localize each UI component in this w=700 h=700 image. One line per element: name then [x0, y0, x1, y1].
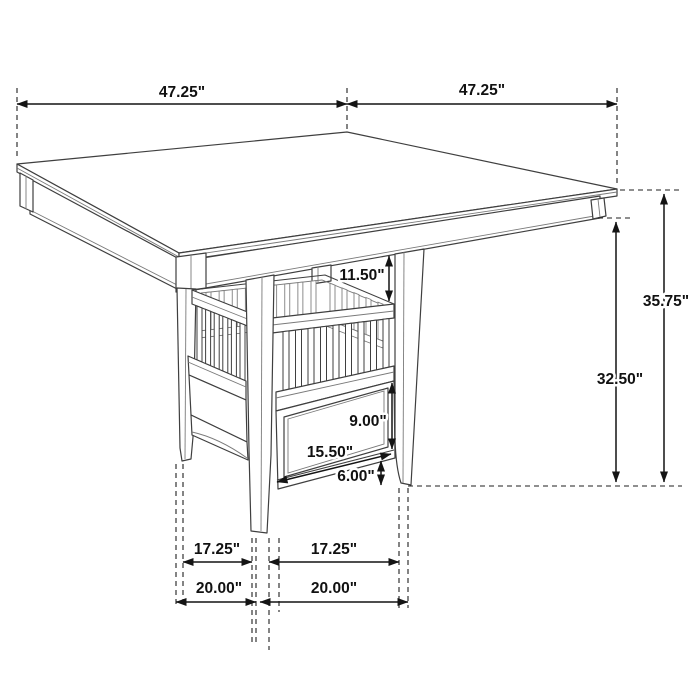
shelf-slat — [240, 323, 245, 381]
shelf-slat — [214, 313, 219, 370]
label-span-outer-left: 20.00" — [196, 580, 242, 597]
shelf-slat — [197, 306, 202, 362]
shelf-slat — [296, 329, 302, 387]
shelf-slat — [231, 320, 236, 377]
label-height-to-apron: 32.50" — [597, 371, 643, 388]
label-span-inner-right: 17.25" — [311, 541, 357, 558]
label-top-width-right: 47.25" — [459, 82, 505, 99]
shelf-slat — [321, 326, 327, 382]
label-apron-to-shelf: 11.50" — [339, 267, 384, 284]
shelf-slat — [383, 319, 389, 369]
shelf-slat — [346, 323, 352, 377]
shelf-slat — [283, 331, 289, 391]
shelf-slat — [223, 316, 228, 373]
leg-right-post — [395, 249, 424, 485]
shelf-slat — [371, 320, 377, 371]
shelf-slat — [311, 281, 316, 318]
product-dimension-diagram: 47.25" 47.25" 35.75" 32.50" 11.50" 9.00"… — [0, 0, 700, 700]
leg-right — [395, 249, 424, 485]
shelf-slat — [333, 325, 339, 380]
label-span-inner-left: 17.25" — [194, 541, 240, 558]
leg-front-post — [246, 275, 274, 533]
label-ground-clearance: 6.00" — [337, 468, 375, 485]
table-drawing-canvas: 47.25" 47.25" 35.75" 32.50" 11.50" 9.00"… — [0, 0, 700, 700]
leg-front — [246, 275, 274, 533]
label-overall-height: 35.75" — [643, 293, 689, 310]
label-drawer-height: 9.00" — [349, 413, 387, 430]
label-drawer-width: 15.50" — [307, 444, 353, 461]
shelf-slat — [358, 322, 364, 374]
shelf-slat — [206, 309, 211, 365]
shelf-slat — [308, 328, 314, 385]
label-span-outer-right: 20.00" — [311, 580, 357, 597]
label-top-width-left: 47.25" — [159, 84, 205, 101]
apron-end-block-left — [20, 173, 33, 212]
